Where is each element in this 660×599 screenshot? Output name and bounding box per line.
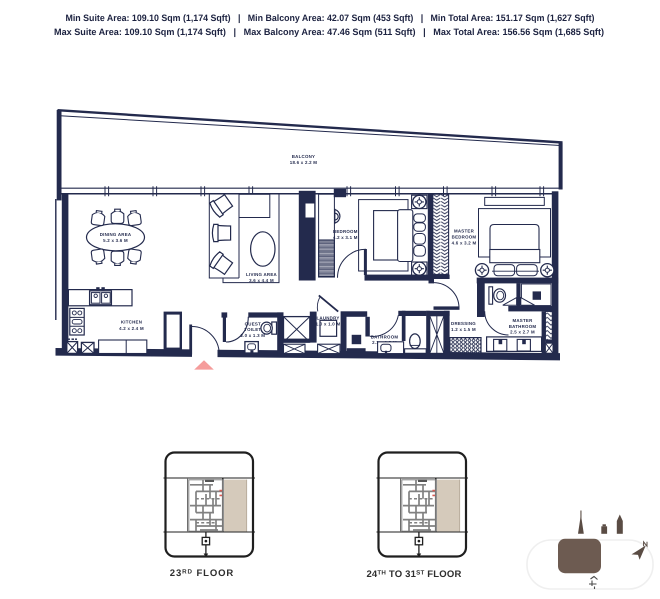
- svg-text:5.2 x 3.6 M: 5.2 x 3.6 M: [103, 238, 128, 243]
- svg-text:MASTER: MASTER: [512, 318, 533, 323]
- svg-text:2.5 x 2.7 M: 2.5 x 2.7 M: [510, 330, 535, 335]
- svg-text:4.2 x 3.1 M: 4.2 x 3.1 M: [333, 235, 358, 240]
- svg-text:18.6 x 2.2 M: 18.6 x 2.2 M: [290, 160, 318, 165]
- svg-text:4.6 x 3.2 M: 4.6 x 3.2 M: [452, 241, 477, 246]
- svg-text:DINING AREA: DINING AREA: [100, 232, 132, 237]
- svg-text:BEDROOM: BEDROOM: [452, 235, 477, 240]
- svg-text:1.2 x 1.5 M: 1.2 x 1.5 M: [451, 327, 476, 332]
- svg-text:KITCHEN: KITCHEN: [121, 320, 142, 325]
- svg-text:BATHROOM: BATHROOM: [509, 324, 537, 329]
- svg-text:DRESSING: DRESSING: [451, 321, 476, 326]
- svg-text:4.2 x 2.4 M: 4.2 x 2.4 M: [119, 326, 144, 331]
- svg-text:TOILET: TOILET: [244, 327, 261, 332]
- svg-text:Min Suite Area: 109.10 Sqm (1,: Min Suite Area: 109.10 Sqm (1,174 Sqft) …: [66, 13, 595, 24]
- svg-text:BATHROOM: BATHROOM: [371, 335, 399, 340]
- svg-text:3.6 x 4.4 M: 3.6 x 4.4 M: [249, 278, 274, 283]
- svg-text:2.0 x 1.3 M: 2.0 x 1.3 M: [240, 333, 265, 338]
- svg-text:BEDROOM: BEDROOM: [333, 229, 358, 234]
- svg-text:LIVING AREA: LIVING AREA: [246, 272, 277, 277]
- svg-text:23RD FLOOR: 23RD FLOOR: [170, 568, 234, 579]
- svg-text:BALCONY: BALCONY: [292, 154, 315, 159]
- svg-text:MASTER: MASTER: [454, 229, 475, 234]
- svg-text:Max Suite Area: 109.10 Sqm (1,: Max Suite Area: 109.10 Sqm (1,174 Sqft) …: [54, 27, 604, 38]
